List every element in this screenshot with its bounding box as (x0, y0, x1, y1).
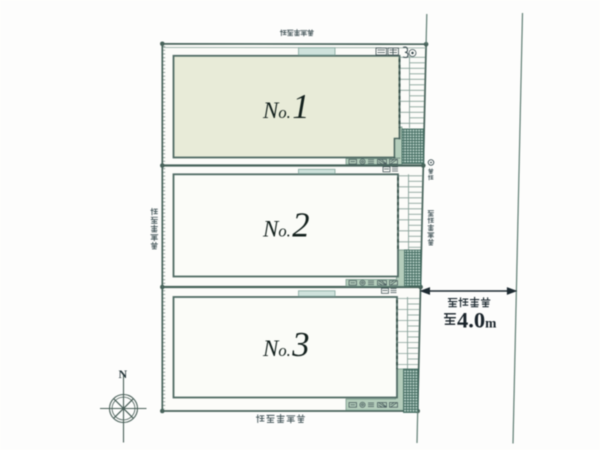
svg-text:N: N (119, 367, 128, 381)
